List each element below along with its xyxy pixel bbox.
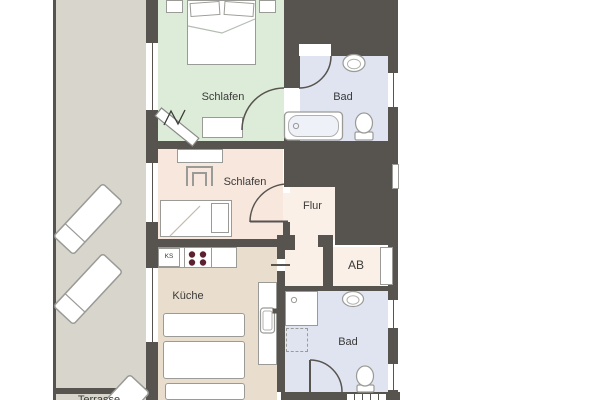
nightstand-right	[259, 0, 276, 13]
table	[163, 341, 245, 379]
window-bath-bottom-2	[388, 364, 398, 390]
pillow-right	[224, 1, 255, 17]
window-bedroom-mid	[146, 163, 158, 222]
label-bath-top: Bad	[320, 91, 366, 103]
label-kitchen: Küche	[150, 290, 226, 302]
wall-storage-left	[323, 247, 333, 286]
radiator-bottom	[347, 393, 387, 400]
sink-counter	[258, 282, 277, 365]
label-storage: AB	[336, 259, 376, 271]
wall-storage-corner	[318, 235, 333, 247]
dresser	[202, 117, 243, 138]
hallway-floor	[290, 187, 335, 240]
kitchen-wall-opening	[277, 259, 285, 271]
label-terrace: Terrasse	[63, 394, 135, 400]
wall-block-right	[335, 141, 398, 245]
terrace-floor	[56, 0, 146, 400]
washer-space	[286, 328, 308, 352]
label-fridge: KS	[159, 253, 179, 260]
window-bedroom-top	[146, 43, 158, 110]
bench-bottom	[165, 383, 245, 400]
wall-kitchen-top	[146, 239, 295, 247]
hallway-doorway-floor	[283, 193, 290, 222]
terrace-left-edge	[53, 0, 56, 400]
bath-top-door-opening	[299, 44, 331, 56]
window-bath-top	[388, 73, 398, 107]
hallway-alcove-floor	[285, 247, 323, 286]
stove	[184, 247, 212, 268]
floor-plan: Schlafen Bad Schlafen Flur Küche AB Bad …	[0, 0, 600, 400]
wall-bedrooms-divider	[146, 141, 300, 149]
label-hallway: Flur	[290, 200, 335, 212]
window-bath-bottom-1	[388, 300, 398, 328]
nightstand-left	[166, 0, 183, 13]
bench-top	[163, 313, 245, 337]
label-bath-bottom: Bad	[325, 336, 371, 348]
bath-top-doorway-floor	[284, 88, 300, 130]
wall-bedroom-bath-sep-bottom	[284, 130, 300, 141]
label-bedroom-top: Schlafen	[185, 91, 261, 103]
entrance-opening-right	[392, 164, 399, 189]
sideboard	[177, 149, 223, 163]
wall-block-center	[284, 141, 335, 187]
label-bedroom-mid: Schlafen	[207, 176, 283, 188]
shower	[285, 291, 318, 326]
pillow-left	[190, 1, 221, 17]
single-bed-pillow	[211, 203, 229, 233]
window-kitchen	[146, 268, 158, 342]
storage-door-panel	[380, 247, 393, 285]
